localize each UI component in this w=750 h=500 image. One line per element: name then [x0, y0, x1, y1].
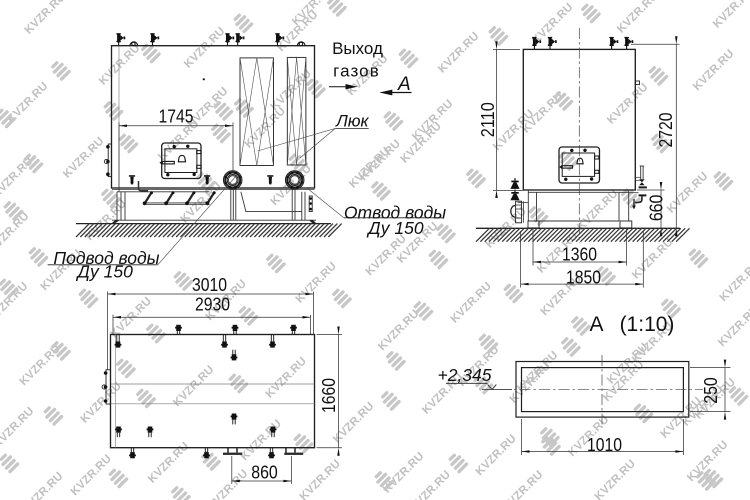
svg-text:3010: 3010 [192, 274, 227, 295]
svg-text:Выход: Выход [332, 39, 383, 58]
svg-text:(1:10): (1:10) [620, 313, 675, 336]
svg-text:1850: 1850 [566, 266, 601, 287]
svg-text:Люк: Люк [335, 111, 369, 130]
svg-text:1660: 1660 [318, 378, 339, 413]
svg-text:860: 860 [251, 462, 278, 483]
svg-text:1745: 1745 [159, 105, 194, 126]
svg-text:660: 660 [645, 195, 666, 222]
svg-text:2930: 2930 [195, 294, 230, 315]
svg-text:2110: 2110 [477, 102, 498, 137]
svg-text:газов: газов [333, 61, 380, 80]
svg-text:А: А [397, 74, 411, 95]
svg-text:1360: 1360 [562, 243, 597, 264]
svg-text:1010: 1010 [587, 434, 622, 455]
svg-text:А: А [589, 313, 603, 336]
svg-text:Ду 150: Ду 150 [366, 218, 424, 238]
svg-text:250: 250 [700, 377, 721, 404]
svg-text:+2,345: +2,345 [437, 365, 491, 385]
svg-text:2720: 2720 [655, 113, 676, 148]
